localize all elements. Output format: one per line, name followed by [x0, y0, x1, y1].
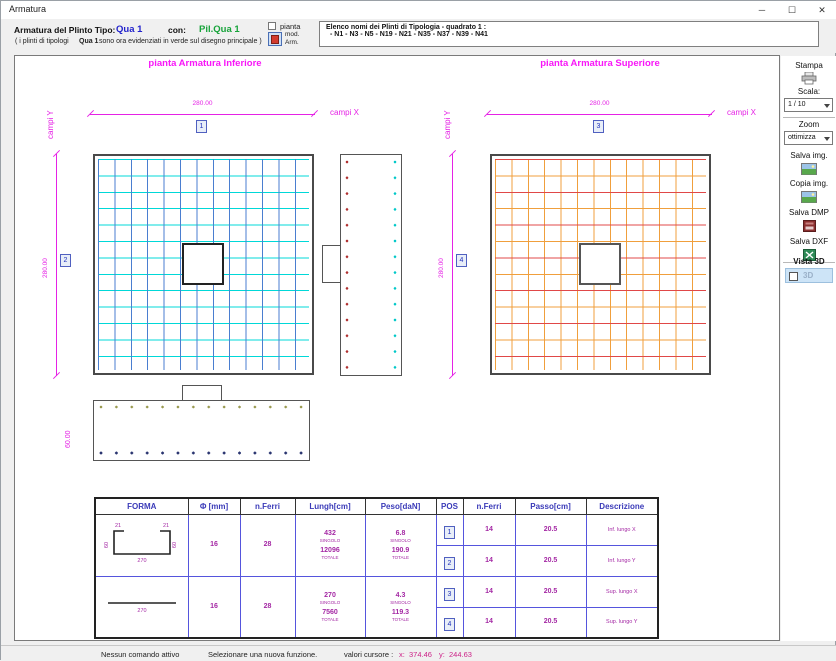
descrizione-value: Inf. lungo X — [586, 514, 658, 545]
ubar-leg-left-label: 60 — [104, 541, 110, 547]
printer-icon[interactable] — [801, 72, 817, 85]
pianta-label: pianta — [280, 22, 300, 31]
side-section-bars-right — [393, 160, 397, 370]
elenco-list: - N1 - N3 - N5 - N19 - N21 - N35 - N37 -… — [326, 31, 812, 38]
note-suffix: sono ora evidenziati in verde sul disegn… — [99, 38, 262, 45]
nferri-pos-value: 14 — [463, 607, 515, 638]
totale-label: TOTALE — [296, 555, 365, 560]
divider — [783, 117, 835, 118]
col-passo: Passo[cm] — [515, 498, 586, 514]
descrizione-value: Inf. lungo Y — [586, 545, 658, 576]
mod-arm-glyph — [271, 35, 279, 44]
side-section-bars-left — [345, 160, 349, 370]
chevron-down-icon — [824, 104, 830, 108]
nferri-value: 28 — [240, 576, 295, 638]
mod-label: mod. — [285, 31, 299, 38]
plinto-tipo-label: Armatura del Plinto Tipo: — [14, 25, 115, 35]
superiore-column-outline — [579, 243, 621, 285]
note-prefix: ( i plinti di tipologi — [15, 38, 69, 45]
status-bar: Nessun comando attivo Selezionare una nu… — [1, 645, 836, 661]
singolo-label: SINGOLO — [296, 600, 365, 605]
peso-singolo: 4.3 — [366, 592, 436, 600]
vista3d-toggle[interactable]: 3D — [785, 268, 833, 283]
dim-tick — [53, 372, 60, 379]
con-label: con: — [168, 25, 186, 35]
dim-tick — [708, 110, 715, 117]
pos-badge: 1 — [444, 526, 455, 539]
window-title: Armatura — [9, 4, 46, 14]
totale-label: TOTALE — [366, 555, 436, 560]
vista3d-label: Vista 3D — [781, 257, 836, 266]
plinto-tipo-value: Qua 1 — [116, 24, 142, 35]
superiore-dimline-y — [452, 154, 453, 376]
side-section-column-stub — [322, 245, 341, 283]
totale-label: TOTALE — [366, 617, 436, 622]
col-nferri: n.Ferri — [240, 498, 295, 514]
inferiore-campi-x-label: campi X — [330, 108, 359, 117]
scala-label: Scala: — [781, 87, 836, 96]
passo-value: 20.5 — [515, 545, 586, 576]
salva-img-label: Salva img. — [781, 151, 836, 160]
superiore-dim-x: 280.00 — [487, 100, 712, 107]
rebar-schedule-table: FORMA Φ [mm] n.Ferri Lungh[cm] Peso[daN]… — [94, 497, 659, 639]
toolbar-sidebar: Stampa Scala: 1 / 10 Zoom ottimizza Salv… — [781, 56, 836, 641]
elenco-title: Elenco nomi dei Plinti di Tipologia - qu… — [326, 24, 812, 31]
inferiore-dim-y: 280.00 — [42, 258, 49, 278]
peso-totale: 190.9 — [366, 547, 436, 555]
nferri-value: 28 — [240, 514, 295, 576]
lungh-totale: 7560 — [296, 609, 365, 617]
superiore-title: pianta Armatura Superiore — [470, 58, 730, 69]
cursor-x-label: x: — [399, 650, 405, 659]
descrizione-value: Sup. lungo X — [586, 576, 658, 607]
superiore-campi-x-label: campi X — [727, 108, 756, 117]
scala-value: 1 / 10 — [788, 101, 806, 108]
peso-singolo: 6.8 — [366, 530, 436, 538]
dim-tick — [311, 110, 318, 117]
drawing-canvas: pianta Armatura Inferiore pianta Armatur… — [14, 55, 780, 641]
pos-badge: 3 — [444, 588, 455, 601]
passo-value: 20.5 — [515, 607, 586, 638]
pos-badge: 2 — [444, 557, 455, 570]
cursor-values-label: valori cursore : — [344, 650, 393, 659]
lungh-totale: 12096 — [296, 547, 365, 555]
inferiore-dimline-y — [56, 154, 57, 376]
singolo-label: SINGOLO — [366, 600, 436, 605]
front-section-bars-bottom — [99, 451, 305, 455]
elenco-plinti-box: Elenco nomi dei Plinti di Tipologia - qu… — [319, 21, 819, 47]
inferiore-dimline-x — [90, 114, 315, 115]
table-row: 21 21 60 60 270 16 28 432 SINGOLO 12096 … — [95, 514, 658, 545]
status-command: Nessun comando attivo — [101, 650, 179, 659]
lungh-singolo: 432 — [296, 530, 365, 538]
passo-value: 20.5 — [515, 576, 586, 607]
singolo-label: SINGOLO — [366, 538, 436, 543]
pos-badge: 4 — [444, 618, 455, 631]
lungh-singolo: 270 — [296, 592, 365, 600]
close-icon[interactable]: ✕ — [807, 1, 836, 19]
nferri-pos-value: 14 — [463, 545, 515, 576]
salva-dmp-label: Salva DMP — [781, 208, 836, 217]
pos-marker-2: 2 — [60, 254, 71, 267]
passo-value: 20.5 — [515, 514, 586, 545]
pos-cell: 3 — [436, 576, 463, 607]
stampa-label: Stampa — [781, 61, 836, 70]
ubar-leg-right-label: 60 — [172, 541, 178, 547]
peso-cell: 4.3 SINGOLO 119.3 TOTALE — [365, 576, 436, 638]
note-tipo: Qua 1 — [79, 38, 98, 45]
arm-label: Arm. — [285, 39, 299, 46]
cursor-x-value: 374.46 — [409, 650, 432, 659]
inferiore-title: pianta Armatura Inferiore — [75, 58, 335, 69]
ubar-hook-right-label: 21 — [163, 523, 169, 529]
totale-label: TOTALE — [296, 617, 365, 622]
col-forma: FORMA — [95, 498, 188, 514]
diam-value: 16 — [188, 576, 240, 638]
diam-value: 16 — [188, 514, 240, 576]
vista3d-checkbox[interactable] — [789, 272, 798, 281]
zoom-label: Zoom — [781, 120, 836, 129]
minimize-icon[interactable]: ─ — [747, 1, 777, 19]
title-bar: Armatura ─ ☐ ✕ — [1, 1, 836, 19]
pos-cell: 4 — [436, 607, 463, 638]
copia-img-label: Copia img. — [781, 179, 836, 188]
front-section-view — [93, 400, 310, 461]
salva-dxf-label: Salva DXF — [781, 237, 836, 246]
zoom-select[interactable]: ottimizza — [784, 131, 833, 145]
inferiore-dim-x: 280.00 — [90, 100, 315, 107]
cursor-y-value: 244.63 — [449, 650, 472, 659]
singolo-label: SINGOLO — [296, 538, 365, 543]
chevron-down-icon — [824, 137, 830, 141]
ubar-hook-left-label: 21 — [115, 523, 121, 529]
section-height-dim: 60.00 — [65, 430, 72, 448]
scala-select[interactable]: 1 / 10 — [784, 98, 833, 112]
pos-cell: 2 — [436, 545, 463, 576]
superiore-dim-y: 280.00 — [438, 258, 445, 278]
inferiore-column-outline — [182, 243, 224, 285]
lungh-cell: 270 SINGOLO 7560 TOTALE — [295, 576, 365, 638]
vista3d-check-label: 3D — [803, 271, 813, 280]
pianta-checkbox[interactable] — [268, 22, 276, 30]
pos-cell: 1 — [436, 514, 463, 545]
col-diametro: Φ [mm] — [188, 498, 240, 514]
col-lunghezza: Lungh[cm] — [295, 498, 365, 514]
zoom-value: ottimizza — [788, 134, 816, 141]
col-pos: POS — [436, 498, 463, 514]
maximize-icon[interactable]: ☐ — [777, 1, 807, 19]
front-section-column-stub — [182, 385, 222, 401]
table-row: 270 16 28 270 SINGOLO 7560 TOTALE 4.3 SI… — [95, 576, 658, 607]
peso-totale: 119.3 — [366, 609, 436, 617]
pos-marker-4: 4 — [456, 254, 467, 267]
straight-base-label: 270 — [137, 608, 146, 614]
col-peso: Peso[daN] — [365, 498, 436, 514]
pos-marker-3: 3 — [593, 120, 604, 133]
side-section-view — [340, 154, 402, 376]
cursor-y-label: y: — [439, 650, 445, 659]
superiore-campi-y-label: campi Y — [443, 110, 452, 139]
peso-cell: 6.8 SINGOLO 190.9 TOTALE — [365, 514, 436, 576]
superiore-dimline-x — [487, 114, 712, 115]
table-header-row: FORMA Φ [mm] n.Ferri Lungh[cm] Peso[daN]… — [95, 498, 658, 514]
copy-image-icon[interactable] — [801, 190, 817, 203]
status-hint: Selezionare una nuova funzione. — [208, 650, 317, 659]
descrizione-value: Sup. lungo Y — [586, 607, 658, 638]
nferri-pos-value: 14 — [463, 576, 515, 607]
mod-arm-icon[interactable] — [268, 32, 282, 46]
forma-ubar-shape: 21 21 60 60 270 — [95, 514, 188, 576]
inferiore-campi-y-label: campi Y — [46, 110, 55, 139]
nferri-pos-value: 14 — [463, 514, 515, 545]
forma-straight-shape: 270 — [95, 576, 188, 638]
header-panel: Armatura del Plinto Tipo: Qua 1 con: Pil… — [1, 19, 836, 53]
col-descrizione: Descrizione — [586, 498, 658, 514]
pilastro-value: Pil.Qua 1 — [199, 24, 240, 35]
ubar-base-label: 270 — [137, 558, 146, 564]
save-image-icon[interactable] — [801, 162, 817, 175]
lungh-cell: 432 SINGOLO 12096 TOTALE — [295, 514, 365, 576]
save-dmp-icon[interactable] — [803, 219, 819, 232]
pos-marker-1: 1 — [196, 120, 207, 133]
front-section-bars-top — [99, 405, 305, 409]
col-nferri2: n.Ferri — [463, 498, 515, 514]
dim-tick — [449, 372, 456, 379]
